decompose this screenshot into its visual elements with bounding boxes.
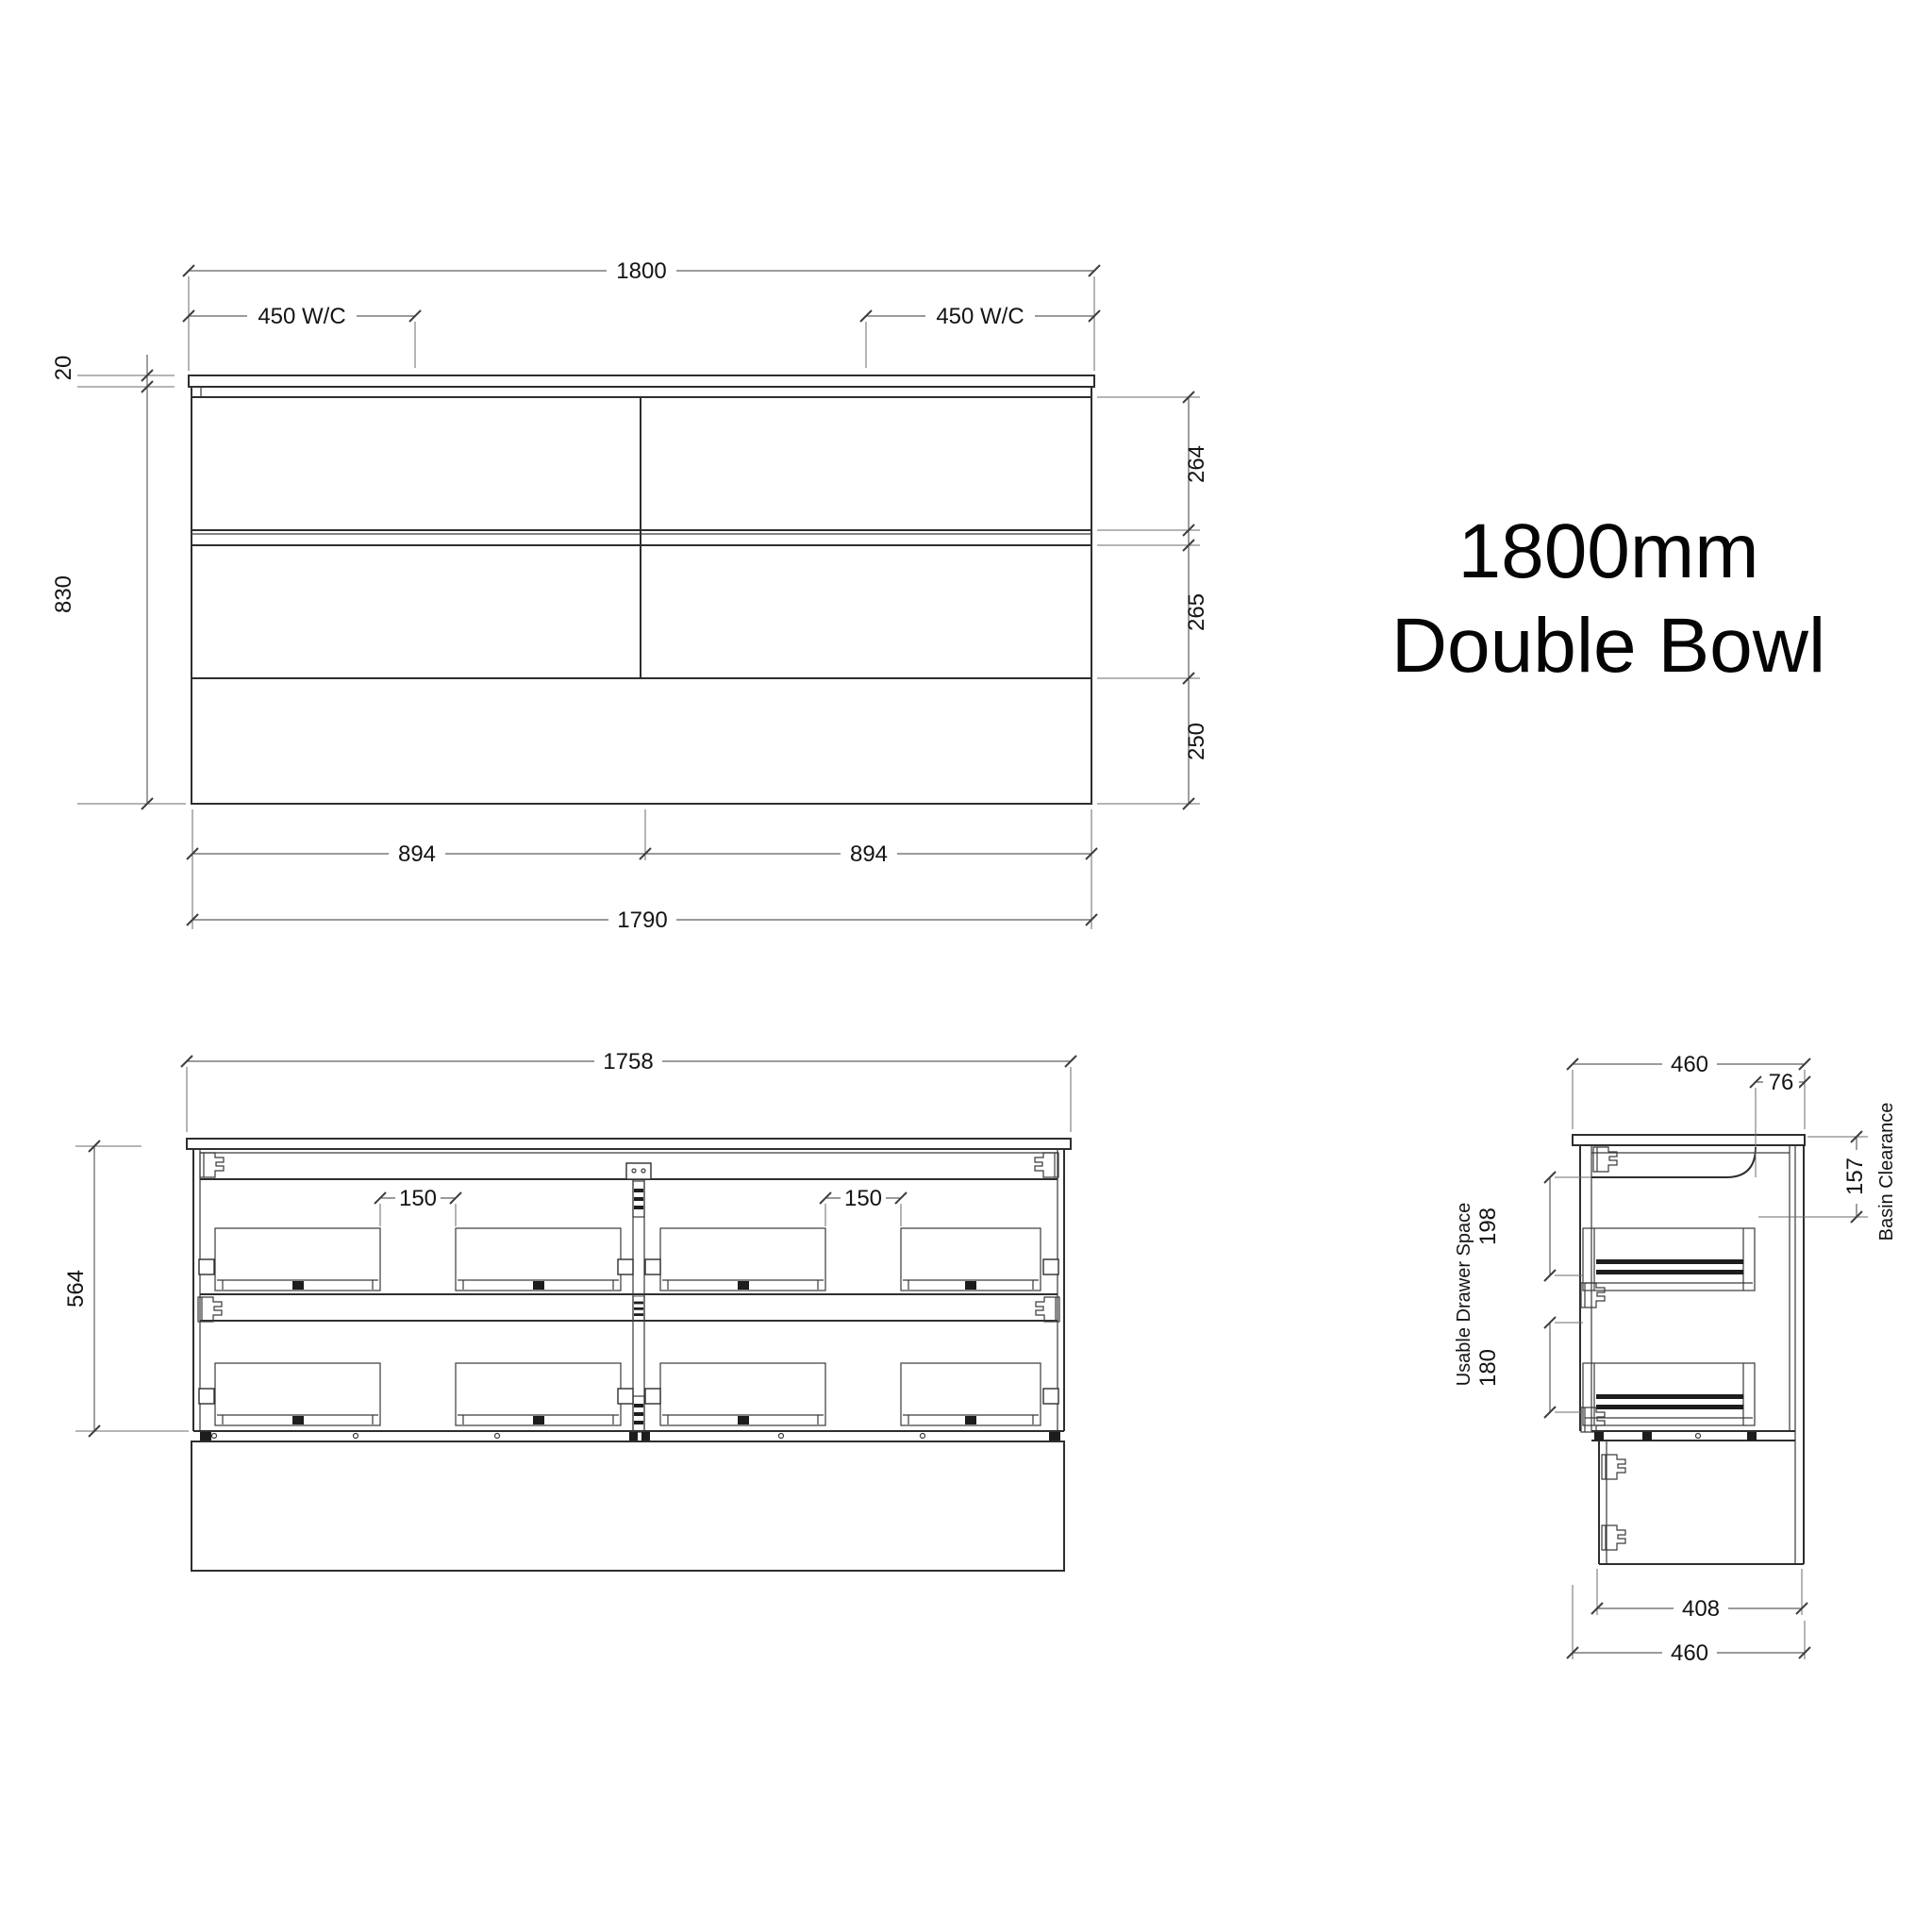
side-section-view: 460 76 157 Basin Clearance: [1454, 1052, 1897, 1666]
title-line2: Double Bowl: [1391, 603, 1825, 689]
dim-bottom-depth: 460: [1671, 1641, 1708, 1666]
dim-front-overhang: 76: [1769, 1070, 1794, 1095]
technical-drawing-page: 1800 450 W/C 450 W/C 20 830: [0, 0, 1932, 1932]
dim-wc-right-group: 450 W/C: [860, 304, 1100, 368]
internal-linework: [187, 1139, 1071, 1571]
drawer-section-top: [1583, 1228, 1755, 1291]
dim-wc-left-group: 450 W/C: [183, 304, 421, 368]
drawing-title: 1800mm Double Bowl: [1391, 508, 1825, 689]
dim-bottom-panel-height: 250: [1184, 723, 1209, 760]
dim-internal-width-group: 1758: [181, 1049, 1076, 1132]
title-line1: 1800mm: [1457, 508, 1758, 594]
internal-front-view: 1758 564 150 150: [63, 1049, 1076, 1571]
dim-overall-width: 1800: [616, 258, 666, 284]
dim-pipe-gap-right: 150: [844, 1186, 882, 1211]
mount-clip-icon: [200, 1153, 224, 1177]
label-usable-drawer-space: Usable Drawer Space: [1454, 1203, 1474, 1387]
dim-kick-depth-group: 408 460: [1567, 1569, 1810, 1666]
dim-kick-depth: 408: [1682, 1596, 1720, 1622]
countertop-internal: [187, 1139, 1071, 1149]
drawer-section-bottom: [1583, 1363, 1755, 1425]
dim-half-width-left: 894: [398, 841, 436, 867]
countertop-front: [189, 375, 1094, 387]
dim-front-overhang-group: 76: [1750, 1070, 1810, 1177]
dim-top-drawer-space: 198: [1475, 1207, 1501, 1245]
dim-basin-clearance: 157: [1842, 1158, 1868, 1195]
front-elevation-view: 1800 450 W/C 450 W/C 20 830: [51, 258, 1209, 933]
dim-bottom-drawer-space: 180: [1475, 1349, 1501, 1387]
dim-carcass-width-front: 1790: [617, 908, 667, 933]
dim-overall-height: 830: [51, 575, 76, 613]
kick-panel-internal: [192, 1441, 1064, 1571]
dim-bottom-group: 894 894 1790: [187, 809, 1097, 933]
side-linework: [1573, 1135, 1805, 1564]
dim-usable-space-group: 198 180 Usable Drawer Space: [1454, 1172, 1591, 1418]
label-basin-clearance: Basin Clearance: [1876, 1103, 1897, 1241]
dim-right-column-group: 264 265 250: [1097, 391, 1209, 809]
vanity-drawing-canvas: 1800 450 W/C 450 W/C 20 830: [0, 0, 1932, 1932]
dim-half-width-right: 894: [850, 841, 888, 867]
dim-left-column-group: 20 830: [51, 355, 186, 809]
dim-internal-height-group: 564: [63, 1141, 189, 1437]
dim-internal-width: 1758: [603, 1049, 653, 1074]
dim-counter-thickness: 20: [51, 356, 76, 381]
dim-wc-right: 450 W/C: [936, 304, 1024, 329]
dim-depth: 460: [1671, 1052, 1708, 1077]
dim-basin-clearance-group: 157 Basin Clearance: [1758, 1103, 1897, 1241]
dim-top-drawer-height: 264: [1184, 445, 1209, 483]
dim-pipe-gap-left: 150: [399, 1186, 437, 1211]
front-elevation-linework: [189, 375, 1094, 804]
dim-wc-left: 450 W/C: [258, 304, 345, 329]
countertop-side: [1573, 1135, 1805, 1145]
dim-internal-height: 564: [63, 1270, 89, 1307]
dim-middle-drawer-height: 265: [1184, 593, 1209, 631]
dim-pipe-gap-left-group: 150: [375, 1186, 461, 1226]
dim-pipe-gap-right-group: 150: [820, 1186, 907, 1226]
